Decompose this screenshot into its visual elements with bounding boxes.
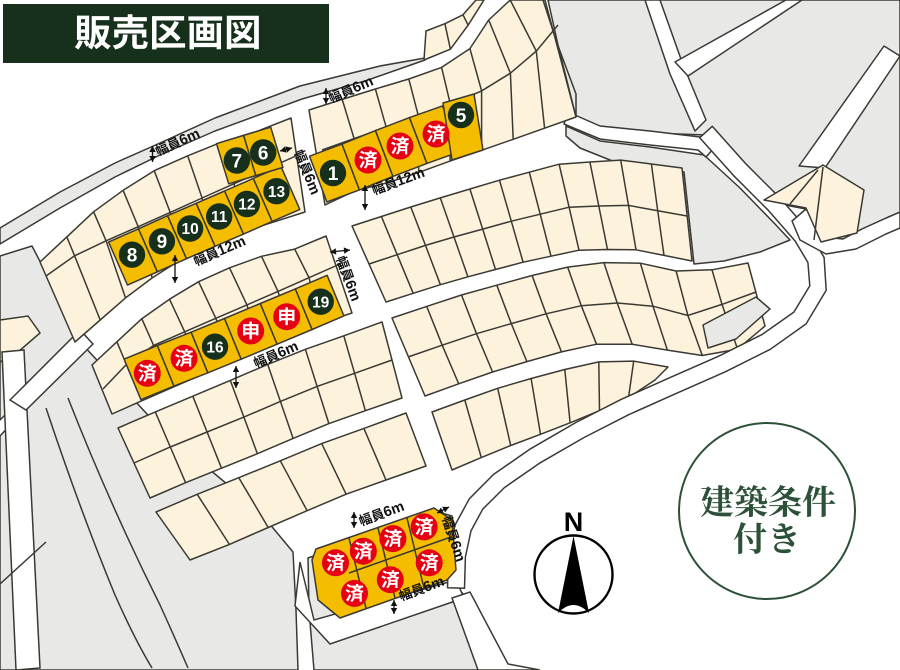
svg-text:5: 5 <box>456 106 467 127</box>
svg-text:7: 7 <box>232 151 243 172</box>
svg-text:6: 6 <box>258 143 269 164</box>
svg-text:8: 8 <box>127 246 138 267</box>
svg-text:16: 16 <box>206 339 224 356</box>
svg-text:13: 13 <box>268 184 286 201</box>
svg-text:N: N <box>564 507 584 537</box>
svg-text:1: 1 <box>328 164 339 185</box>
svg-text:11: 11 <box>211 209 228 226</box>
svg-text:9: 9 <box>157 232 168 253</box>
svg-text:12: 12 <box>238 197 255 214</box>
svg-text:19: 19 <box>312 294 330 311</box>
svg-text:10: 10 <box>181 221 198 238</box>
